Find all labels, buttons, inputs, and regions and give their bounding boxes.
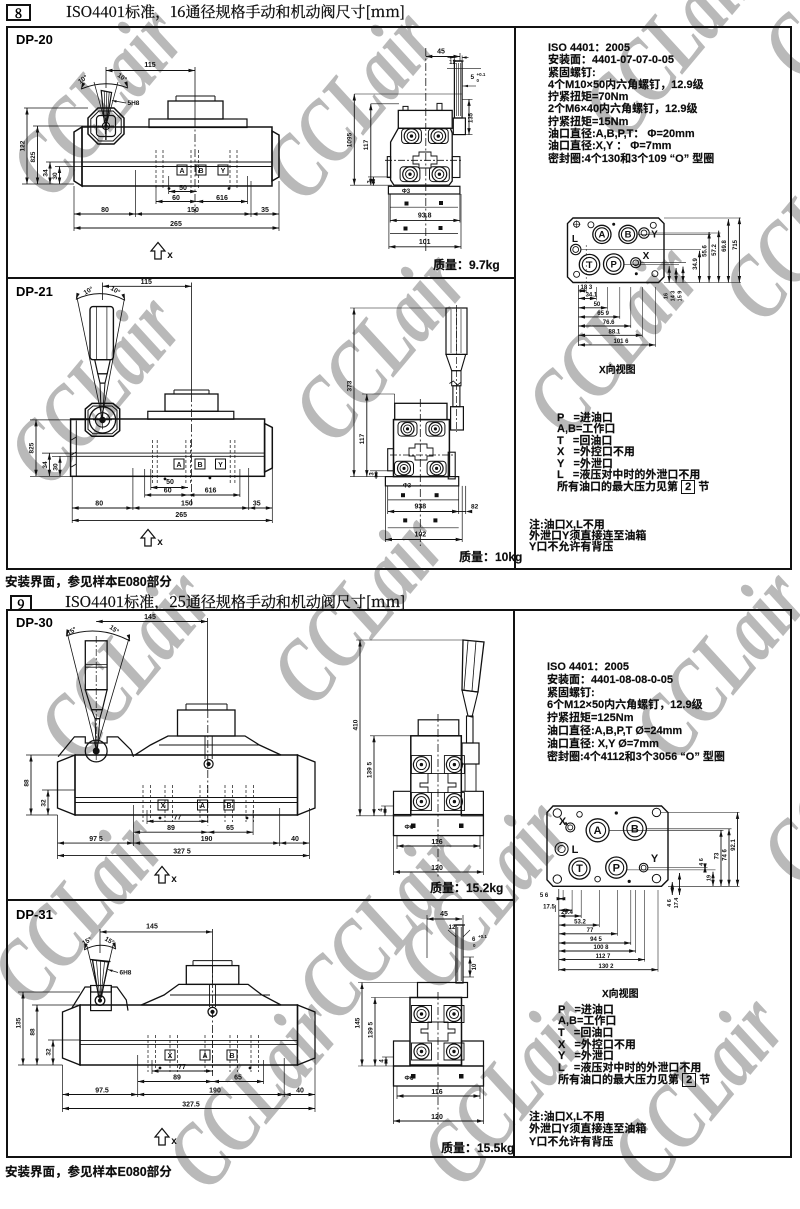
svg-text:50: 50	[594, 302, 601, 308]
svg-text:32: 32	[46, 1048, 53, 1056]
svg-text:135: 135	[468, 112, 474, 123]
svg-text:Y: Y	[651, 853, 659, 865]
svg-text:30: 30	[52, 172, 59, 180]
svg-text:616: 616	[216, 195, 228, 202]
svg-text:T: T	[587, 260, 593, 271]
svg-text:45: 45	[437, 49, 445, 56]
svg-text:B: B	[226, 803, 231, 810]
svg-text:P: P	[613, 862, 620, 874]
svg-text:Φ6: Φ6	[405, 1075, 414, 1082]
svg-text:57.2: 57.2	[712, 244, 718, 256]
svg-text:117: 117	[359, 433, 366, 444]
svg-text:145: 145	[355, 1017, 362, 1028]
svg-text:97 5: 97 5	[89, 836, 103, 843]
svg-text:10: 10	[472, 963, 478, 970]
svg-text:34: 34	[42, 461, 49, 469]
svg-text:122: 122	[20, 140, 27, 151]
svg-text:15°: 15°	[108, 623, 121, 635]
svg-text:4: 4	[379, 808, 385, 812]
svg-text:10°: 10°	[82, 285, 95, 297]
svg-text:53.2: 53.2	[574, 919, 586, 925]
svg-text:77: 77	[174, 815, 182, 822]
svg-text:65: 65	[226, 825, 234, 832]
svg-text:77: 77	[178, 1064, 186, 1071]
svg-text:60: 60	[164, 487, 172, 494]
svg-text:115: 115	[144, 62, 155, 69]
svg-text:65: 65	[234, 1075, 242, 1082]
svg-text:34.1: 34.1	[586, 293, 598, 299]
svg-text:65 9: 65 9	[597, 311, 609, 317]
svg-text:Φ6: Φ6	[405, 824, 414, 831]
svg-text:B: B	[198, 168, 203, 175]
svg-text:4: 4	[380, 1059, 386, 1063]
svg-text:14 3: 14 3	[671, 291, 677, 302]
svg-text:825: 825	[30, 151, 37, 162]
svg-text:16: 16	[664, 293, 670, 299]
svg-text:190: 190	[209, 1088, 221, 1095]
svg-text:616: 616	[205, 487, 217, 494]
svg-text:88: 88	[30, 1028, 37, 1036]
svg-text:120: 120	[431, 865, 443, 872]
svg-text:116: 116	[431, 1089, 442, 1096]
svg-text:410: 410	[353, 719, 360, 730]
svg-text:265: 265	[175, 512, 187, 519]
svg-text:60: 60	[172, 195, 180, 202]
svg-text:3: 3	[370, 472, 376, 476]
svg-text:112 7: 112 7	[596, 954, 611, 960]
svg-text:L: L	[572, 844, 579, 856]
svg-text:B: B	[625, 230, 632, 241]
svg-text:A: A	[594, 825, 602, 837]
svg-text:5 6: 5 6	[540, 893, 549, 899]
svg-text:50: 50	[166, 479, 174, 486]
svg-text:B: B	[631, 824, 639, 836]
svg-text:X: X	[559, 816, 567, 828]
svg-text:93.8: 93.8	[418, 213, 432, 220]
svg-text:1095: 1095	[347, 132, 354, 147]
svg-text:19: 19	[707, 875, 713, 881]
svg-text:97.5: 97.5	[95, 1088, 109, 1095]
svg-text:327.5: 327.5	[182, 1102, 200, 1109]
svg-text:89: 89	[167, 825, 175, 832]
svg-text:A: A	[200, 803, 205, 810]
svg-text:34: 34	[43, 169, 50, 177]
svg-text:12: 12	[449, 60, 456, 66]
svg-text:Φ3: Φ3	[402, 189, 411, 195]
svg-text:P: P	[611, 259, 618, 270]
svg-text:35: 35	[253, 501, 261, 508]
svg-text:89: 89	[173, 1075, 181, 1082]
svg-text:715: 715	[733, 239, 739, 250]
svg-text:139 5: 139 5	[368, 1021, 375, 1038]
svg-text:5H8: 5H8	[128, 100, 140, 107]
svg-text:73: 73	[715, 852, 721, 859]
svg-text:+0.1: +0.1	[477, 72, 486, 77]
svg-text:45: 45	[440, 911, 448, 918]
svg-text:80: 80	[101, 207, 109, 214]
svg-text:B: B	[197, 462, 202, 469]
svg-text:10°: 10°	[77, 73, 90, 85]
svg-text:265: 265	[170, 221, 182, 228]
svg-text:80: 80	[95, 501, 103, 508]
svg-text:88.1: 88.1	[609, 330, 621, 336]
svg-text:50: 50	[179, 185, 187, 192]
svg-text:Y: Y	[221, 168, 226, 175]
svg-text:373: 373	[346, 380, 353, 391]
svg-text:T: T	[576, 863, 583, 875]
svg-text:x: x	[171, 874, 177, 885]
svg-text:327 5: 327 5	[173, 849, 191, 856]
svg-text:101 6: 101 6	[613, 339, 629, 345]
svg-text:88: 88	[24, 779, 31, 787]
svg-text:x: x	[157, 537, 163, 548]
svg-text:94 5: 94 5	[590, 937, 602, 943]
svg-text:0: 0	[477, 78, 480, 83]
svg-text:139 5: 139 5	[367, 761, 374, 778]
svg-text:145: 145	[144, 614, 156, 621]
svg-text:40: 40	[291, 836, 299, 843]
svg-text:120: 120	[431, 1114, 443, 1121]
svg-text:5: 5	[471, 74, 475, 81]
svg-text:77: 77	[587, 928, 594, 934]
svg-text:18 3: 18 3	[581, 285, 593, 291]
svg-text:+0.1: +0.1	[478, 934, 487, 939]
svg-text:X: X	[643, 251, 650, 262]
svg-text:0: 0	[473, 943, 476, 948]
svg-text:150: 150	[187, 207, 199, 214]
svg-text:17.4: 17.4	[674, 897, 680, 909]
svg-text:76.6: 76.6	[603, 320, 615, 326]
svg-text:29.4: 29.4	[561, 910, 573, 916]
svg-text:101: 101	[419, 239, 431, 246]
svg-text:x: x	[171, 1136, 177, 1147]
svg-text:100 8: 100 8	[593, 945, 609, 951]
svg-text:A: A	[179, 168, 184, 175]
svg-text:Y: Y	[651, 230, 658, 241]
svg-text:17.5: 17.5	[543, 904, 555, 910]
svg-text:32: 32	[41, 799, 48, 807]
svg-text:6H8: 6H8	[120, 970, 132, 977]
svg-text:Y: Y	[218, 462, 223, 469]
svg-text:34.9: 34.9	[693, 258, 699, 270]
svg-text:15 9: 15 9	[678, 291, 684, 302]
svg-text:69.8: 69.8	[722, 240, 728, 252]
svg-text:116: 116	[431, 839, 442, 846]
svg-text:825: 825	[29, 442, 36, 453]
svg-text:12: 12	[449, 925, 456, 931]
svg-text:40: 40	[296, 1088, 304, 1095]
svg-text:L: L	[572, 234, 578, 245]
svg-text:55.6: 55.6	[703, 245, 709, 257]
svg-text:4 6: 4 6	[699, 858, 705, 866]
svg-text:135: 135	[16, 1017, 23, 1028]
svg-text:190: 190	[201, 836, 213, 843]
svg-text:130 2: 130 2	[598, 964, 614, 970]
svg-text:35: 35	[261, 207, 269, 214]
svg-text:117: 117	[363, 139, 370, 150]
svg-text:92.1: 92.1	[731, 839, 737, 851]
svg-text:150: 150	[181, 501, 193, 508]
svg-text:82: 82	[471, 504, 479, 511]
svg-text:A: A	[598, 230, 605, 241]
svg-text:115: 115	[141, 279, 152, 286]
svg-text:30: 30	[53, 463, 60, 471]
svg-text:A: A	[176, 462, 181, 469]
svg-text:x: x	[167, 250, 173, 261]
svg-text:15°: 15°	[81, 935, 94, 947]
svg-text:145: 145	[146, 924, 158, 931]
svg-text:4 6: 4 6	[667, 899, 673, 907]
svg-text:74 6: 74 6	[723, 849, 729, 861]
